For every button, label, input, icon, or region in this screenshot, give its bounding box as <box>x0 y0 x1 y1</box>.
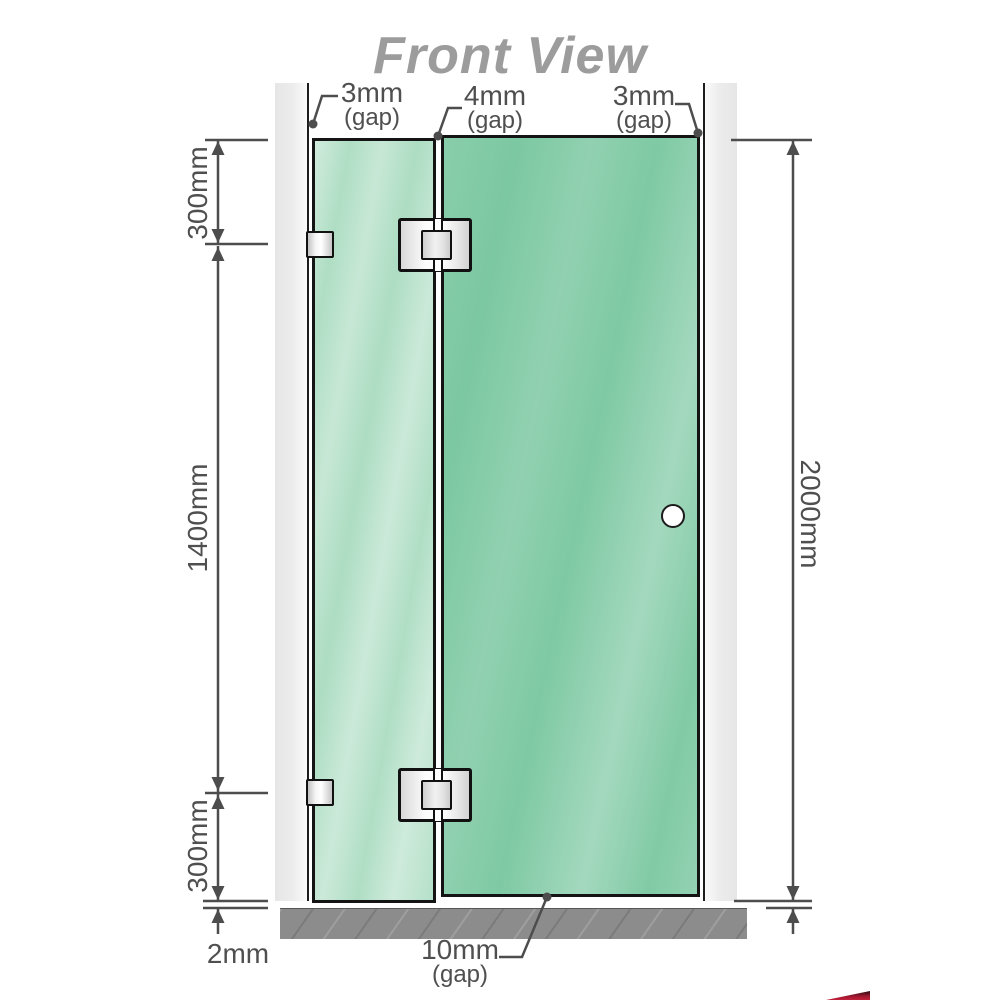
hinge-top-plate <box>421 230 452 260</box>
dim-label-right-full: 2000mm <box>796 444 824 584</box>
gap-label-bottom: 10mm (gap) <box>420 936 500 987</box>
gap-middle-value: 4mm <box>456 82 534 110</box>
gap-label-right: 3mm (gap) <box>606 82 682 133</box>
door-handle-knob <box>661 504 685 528</box>
gap-left-note: (gap) <box>333 106 411 130</box>
hinge-bottom-plate <box>421 780 452 810</box>
wall-bracket-bottom <box>306 779 334 806</box>
gap-label-middle: 4mm (gap) <box>456 82 534 133</box>
left-wall <box>275 83 309 901</box>
dim-label-floor-gap: 2mm <box>198 940 278 968</box>
gap-left-value: 3mm <box>333 79 411 107</box>
gap-right-note: (gap) <box>606 109 682 133</box>
gap-bottom-value: 10mm <box>420 936 500 964</box>
dim-label-left-bottom: 300mm <box>184 786 212 906</box>
right-wall <box>703 83 737 901</box>
dim-label-left-middle: 1400mm <box>184 448 212 588</box>
logo-fragment <box>826 991 870 1000</box>
gap-middle-note: (gap) <box>456 109 534 133</box>
gap-bottom-note: (gap) <box>420 963 500 987</box>
front-view-diagram: Front View <box>0 0 1000 1000</box>
dim-label-left-top: 300mm <box>184 133 212 253</box>
gap-right-value: 3mm <box>606 82 682 110</box>
wall-bracket-top <box>306 231 334 258</box>
floor-base <box>280 908 747 939</box>
gap-label-left: 3mm (gap) <box>333 79 411 130</box>
